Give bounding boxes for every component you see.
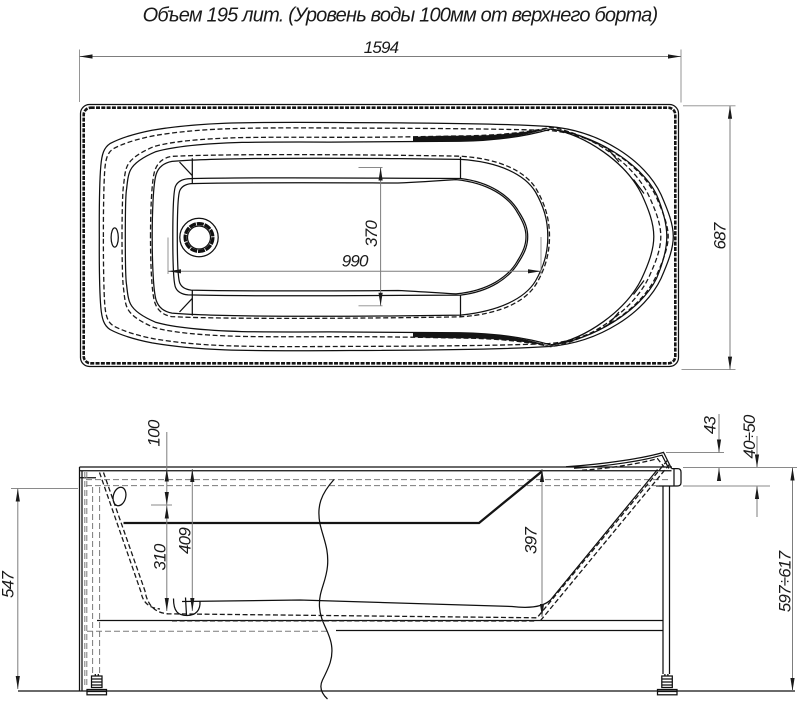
svg-text:990: 990 [342,251,369,270]
svg-text:43: 43 [701,416,720,435]
svg-text:1594: 1594 [364,38,399,57]
svg-text:40÷50: 40÷50 [740,414,759,458]
svg-text:100: 100 [145,419,164,446]
svg-text:397: 397 [522,527,541,554]
svg-text:310: 310 [151,543,170,570]
svg-text:547: 547 [0,571,18,598]
svg-text:409: 409 [176,527,195,554]
svg-text:687: 687 [711,222,730,249]
svg-text:370: 370 [362,220,381,247]
svg-text:Объем 195 лит. (Уровень воды 1: Объем 195 лит. (Уровень воды 100мм от ве… [143,5,658,27]
svg-text:597÷617: 597÷617 [776,550,795,612]
